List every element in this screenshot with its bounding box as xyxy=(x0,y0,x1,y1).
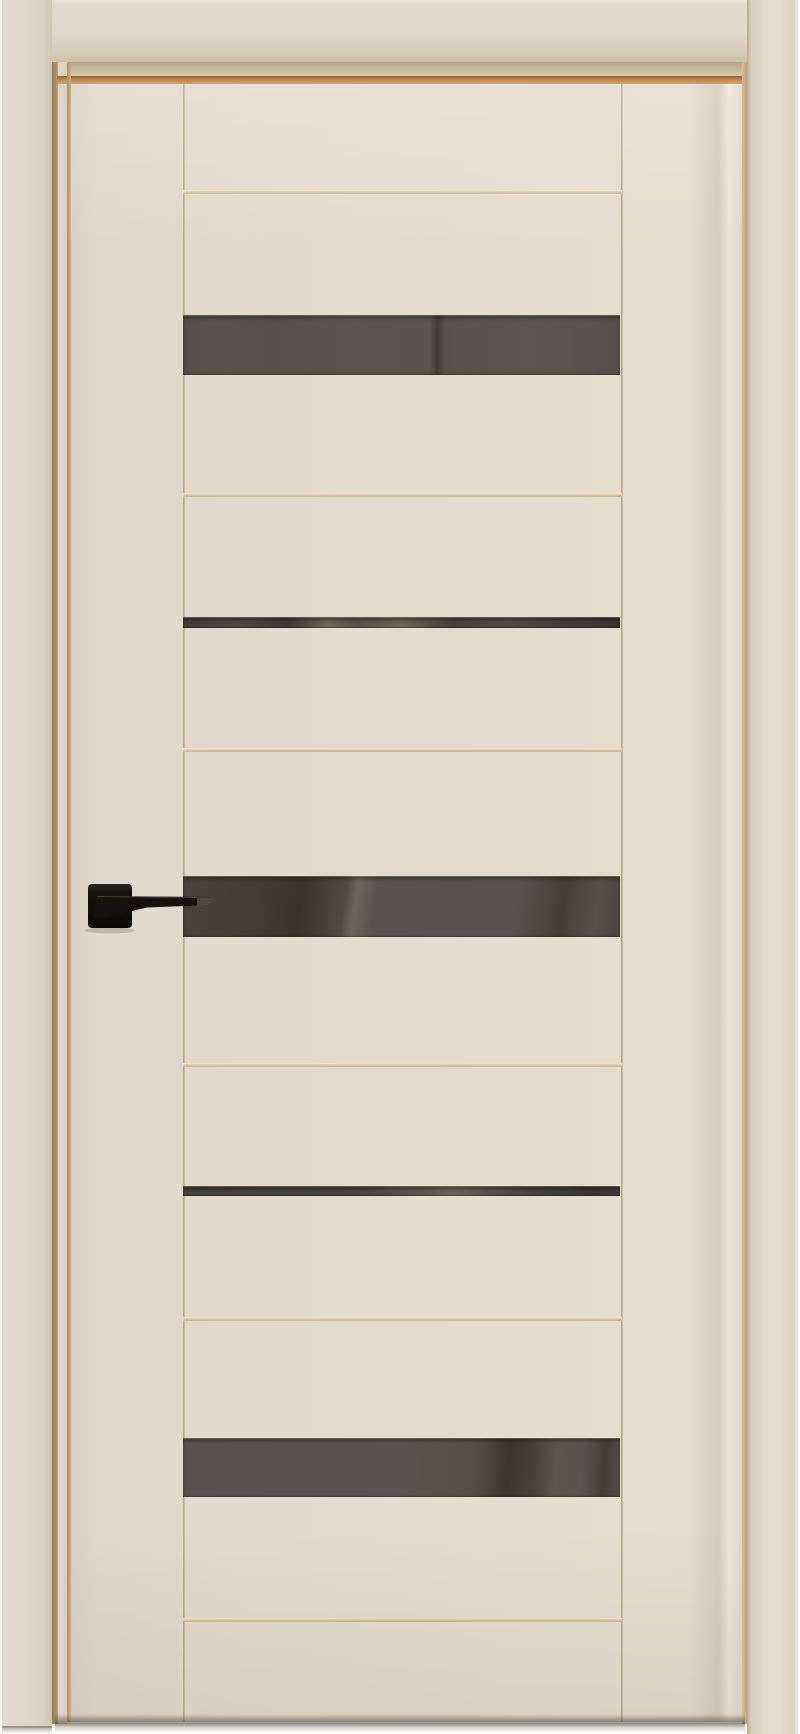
handle-shadow xyxy=(85,928,135,934)
glass-strip-5 xyxy=(183,1438,620,1497)
frame-top-reveal xyxy=(57,76,747,84)
door-frame-right-casing xyxy=(747,0,798,1734)
frame-head-groove xyxy=(52,62,747,76)
handle-lever-tip-highlight xyxy=(197,897,211,906)
glass-strip-1 xyxy=(183,315,620,375)
handle-lever xyxy=(94,896,211,919)
glass-strip-4 xyxy=(183,1186,620,1196)
casing-floor-shadow xyxy=(2,1726,52,1734)
door-frame-head-casing xyxy=(2,0,750,62)
frame-left-recess xyxy=(58,62,67,1724)
lever-handle-graphic xyxy=(85,880,215,930)
door-handle xyxy=(85,880,215,930)
frame-right-reveal xyxy=(742,62,747,1724)
glass-strip-3 xyxy=(183,876,620,937)
door-product-photo xyxy=(0,0,800,1734)
door-frame-left-casing xyxy=(2,0,52,1728)
door-leaf xyxy=(71,84,742,1722)
glass-strip-2 xyxy=(183,617,620,628)
under-door-shadow xyxy=(55,1714,745,1734)
